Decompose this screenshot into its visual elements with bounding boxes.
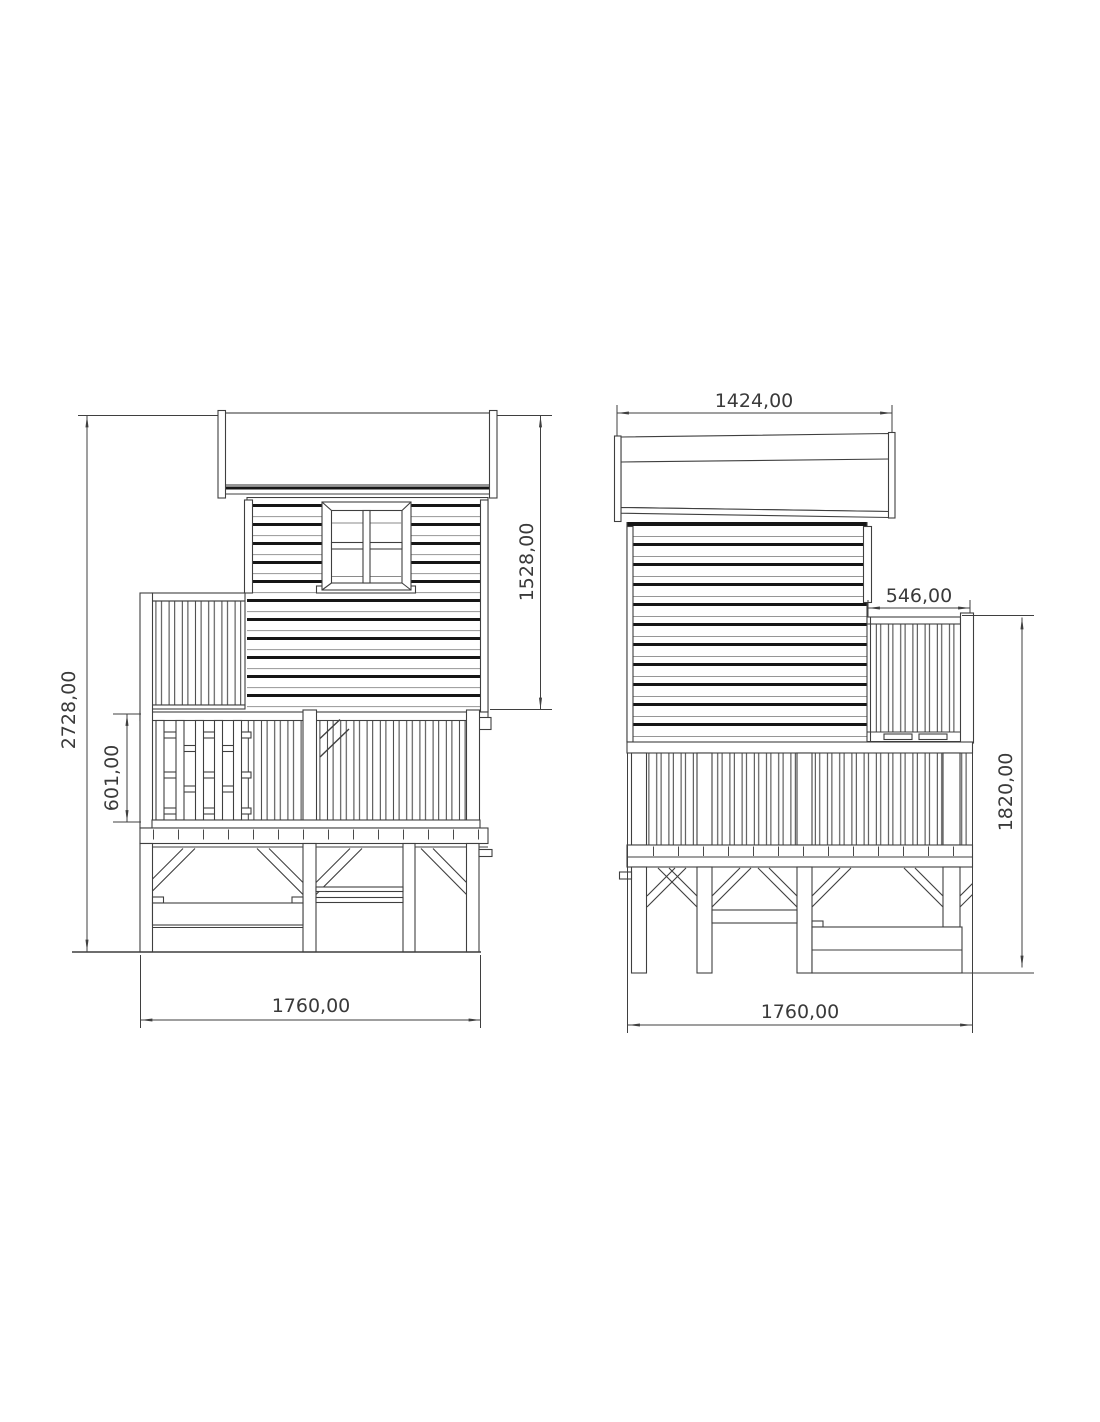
dim-side-roof-width: 1424,00 [617, 390, 892, 436]
front-balcony-railing [152, 593, 245, 709]
dim-front-base-width: 1760,00 [141, 955, 481, 1028]
side-wall [627, 522, 872, 742]
dim-side-balcony-depth: 546,00 [868, 585, 970, 617]
dim-label-side-balcony-depth: 546,00 [886, 585, 952, 607]
dim-label-front-railing-height: 601,00 [101, 745, 123, 811]
front-corner-trim-right [481, 500, 489, 712]
drawing-canvas: 2728,00 1528,00 601,00 1760,00 [0, 0, 1100, 1422]
front-rail-post-left [140, 593, 153, 828]
slide-mount-upper [479, 718, 491, 730]
front-corner-trim-left [245, 500, 253, 593]
front-roof [218, 411, 497, 499]
dim-label-side-base-width: 1760,00 [761, 1001, 840, 1023]
slide-mount-lower [479, 850, 492, 857]
dim-label-side-platform-height: 1820,00 [995, 753, 1017, 832]
side-platform [627, 742, 973, 867]
side-sandbox [812, 921, 962, 973]
front-window-mullion-vertical [363, 511, 370, 584]
dim-front-railing-height: 601,00 [101, 714, 141, 822]
side-ladder-rung [712, 910, 797, 923]
front-rail-post-right [467, 710, 480, 828]
side-corner-trim-left [627, 527, 633, 743]
dim-label-front-total-height: 2728,00 [58, 671, 80, 750]
front-support-posts [140, 844, 479, 953]
side-accessory-mount [620, 872, 632, 879]
dim-label-front-house-height: 1528,00 [516, 523, 538, 602]
front-window [317, 502, 416, 593]
side-corner-trim-right [864, 527, 872, 603]
dim-label-side-roof-width: 1424,00 [715, 390, 794, 412]
dim-label-front-base-width: 1760,00 [272, 995, 351, 1017]
side-roof [615, 433, 896, 522]
front-ladder-rungs [316, 887, 403, 903]
side-elevation-view: 1424,00 546,00 1820,00 1760,00 [615, 390, 1035, 1033]
dim-front-house-height: 1528,00 [490, 416, 552, 710]
front-climbing-lattice [156, 721, 251, 821]
front-rail-post-middle [303, 710, 317, 828]
side-balcony-post [961, 613, 974, 743]
blueprint-page: 2728,00 1528,00 601,00 1760,00 [0, 0, 1100, 1422]
side-balcony-railing [867, 613, 974, 743]
front-elevation-view: 2728,00 1528,00 601,00 1760,00 [58, 411, 552, 1029]
